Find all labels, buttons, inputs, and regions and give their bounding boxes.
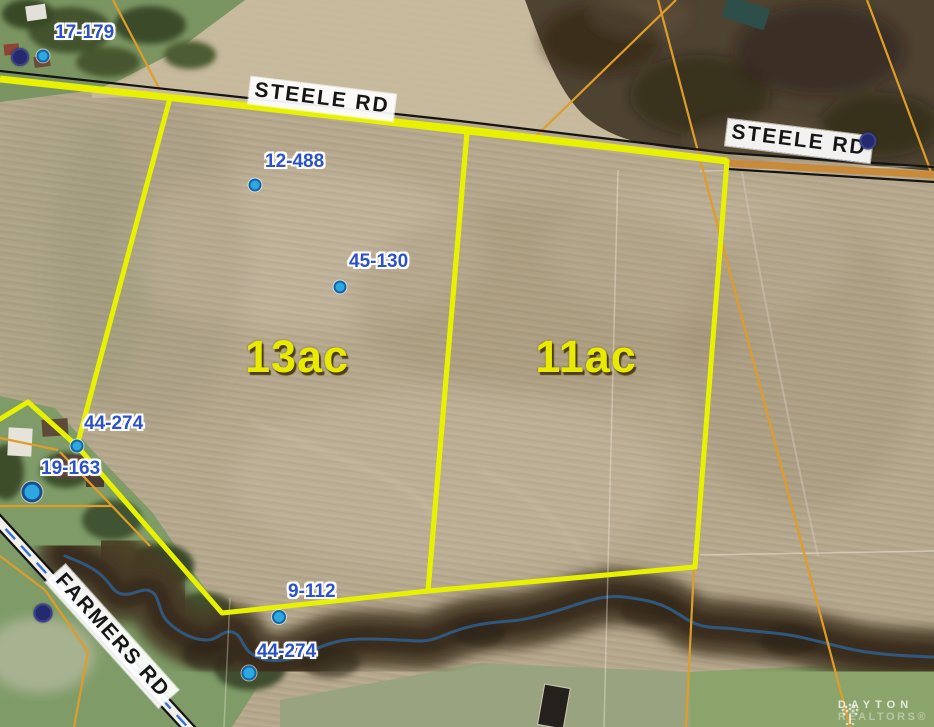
navy-point-dot [11, 48, 29, 66]
parcel-point-label: 12-488 [265, 151, 324, 173]
parcel-point-label: 19-163 [41, 458, 100, 480]
aerial-parcel-map: STEELE RD STEELE RD FARMERS RD 13ac 11ac… [0, 0, 934, 727]
navy-point-dot [860, 133, 877, 150]
parcel-point-label: 45-130 [349, 251, 408, 273]
parcel-point-label: 9-112 [288, 581, 336, 603]
parcel-point-dot [22, 482, 43, 503]
navy-point-dot [34, 604, 53, 623]
parcel-point-dot [242, 666, 257, 681]
parcel-point-dot [249, 179, 262, 192]
parcel-point-dot [334, 281, 347, 294]
watermark-tree-icon [838, 700, 862, 726]
parcel-acreage-label-11ac: 11ac [535, 331, 637, 383]
parcel-point-label: 44-274 [257, 641, 316, 663]
parcel-point-dot [71, 440, 84, 453]
parcel-point-dot [272, 610, 286, 624]
building-top-left-white [25, 4, 47, 22]
parcel-point-label: 44-274 [84, 413, 143, 435]
watermark: DAYTON REALTORS® [838, 700, 928, 723]
parcel-point-label: 17-179 [55, 22, 114, 44]
parcel-point-dot [37, 50, 50, 63]
map-imagery-layer [0, 0, 934, 727]
parcel-acreage-label-13ac: 13ac [245, 331, 349, 383]
